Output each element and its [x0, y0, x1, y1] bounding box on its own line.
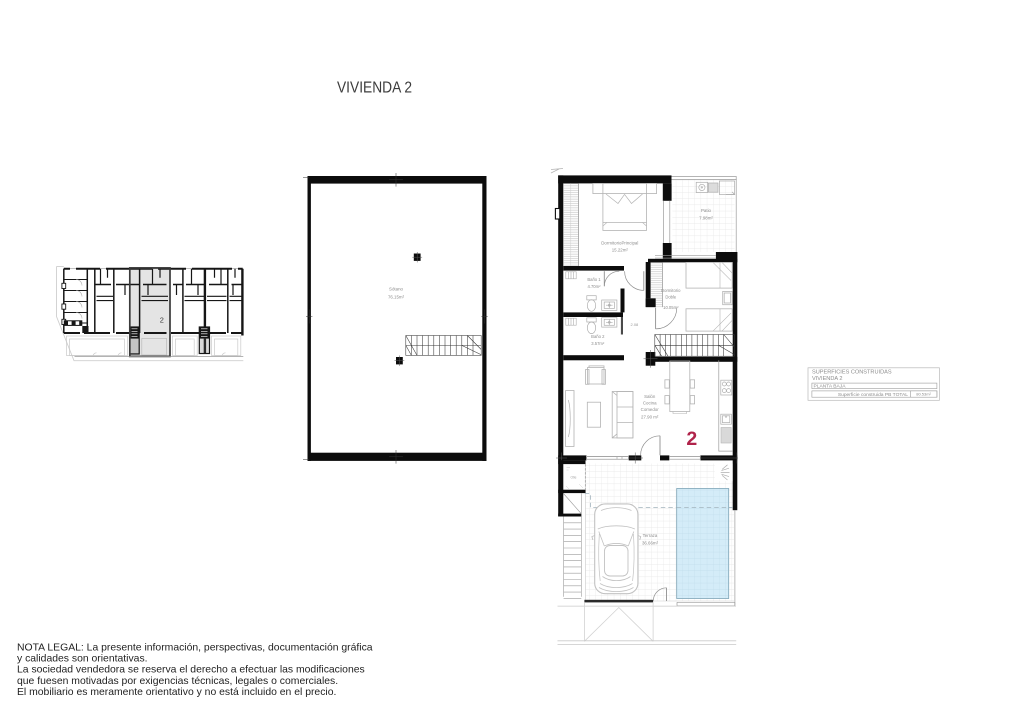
- svg-text:que fuesen motivadas por exige: que fuesen motivadas por exigencias técn…: [17, 676, 338, 687]
- svg-text:Doble: Doble: [665, 295, 677, 300]
- svg-text:El mobiliario es meramente ori: El mobiliario es meramente orientativo y…: [17, 687, 336, 698]
- svg-text:2.08: 2.08: [631, 322, 640, 327]
- svg-text:Baño 2: Baño 2: [591, 334, 605, 339]
- svg-text:Superficie construida PB TOTAL: Superficie construida PB TOTAL: [838, 392, 908, 398]
- svg-text:80.53m²: 80.53m²: [916, 392, 931, 397]
- svg-text:y calidades son orientativas.: y calidades son orientativas.: [17, 654, 148, 665]
- svg-text:27.90 m²: 27.90 m²: [641, 415, 659, 420]
- svg-text:DormitorioPrincipal: DormitorioPrincipal: [601, 241, 638, 246]
- svg-text:Dormitorio: Dormitorio: [661, 288, 681, 293]
- svg-text:PLANTA BAJA: PLANTA BAJA: [814, 384, 847, 390]
- svg-text:4.70m²: 4.70m²: [587, 284, 601, 289]
- svg-text:Comedor: Comedor: [641, 407, 660, 412]
- svg-text:SUPERFICIES CONSTRUIDAS: SUPERFICIES CONSTRUIDAS: [812, 369, 892, 375]
- svg-text:36.66m²: 36.66m²: [642, 541, 659, 546]
- svg-text:VIVIENDA 2: VIVIENDA 2: [812, 376, 842, 382]
- svg-text:Patio: Patio: [701, 208, 712, 213]
- svg-text:Baño 1: Baño 1: [587, 277, 601, 282]
- svg-text:NOTA LEGAL: La presente inform: NOTA LEGAL: La presente información, per…: [17, 642, 373, 653]
- svg-text:15.22m²: 15.22m²: [612, 248, 629, 253]
- svg-text:2: 2: [160, 316, 164, 325]
- svg-text:Salón: Salón: [644, 394, 656, 399]
- svg-text:Cocina: Cocina: [643, 401, 657, 406]
- svg-text:La sociedad vendedora se reser: La sociedad vendedora se reserva el dere…: [17, 665, 365, 676]
- svg-text:2: 2: [686, 428, 697, 450]
- svg-text:Sótano: Sótano: [389, 287, 403, 292]
- svg-text:Otie: Otie: [570, 476, 576, 480]
- svg-text:10.05m²: 10.05m²: [663, 305, 679, 310]
- svg-text:Terraza: Terraza: [643, 533, 658, 538]
- svg-text:7.98m²: 7.98m²: [699, 216, 713, 221]
- svg-text:76.15m²: 76.15m²: [388, 295, 405, 300]
- svg-text:3.57m²: 3.57m²: [591, 341, 605, 346]
- svg-text:VIVIENDA 2: VIVIENDA 2: [337, 80, 412, 97]
